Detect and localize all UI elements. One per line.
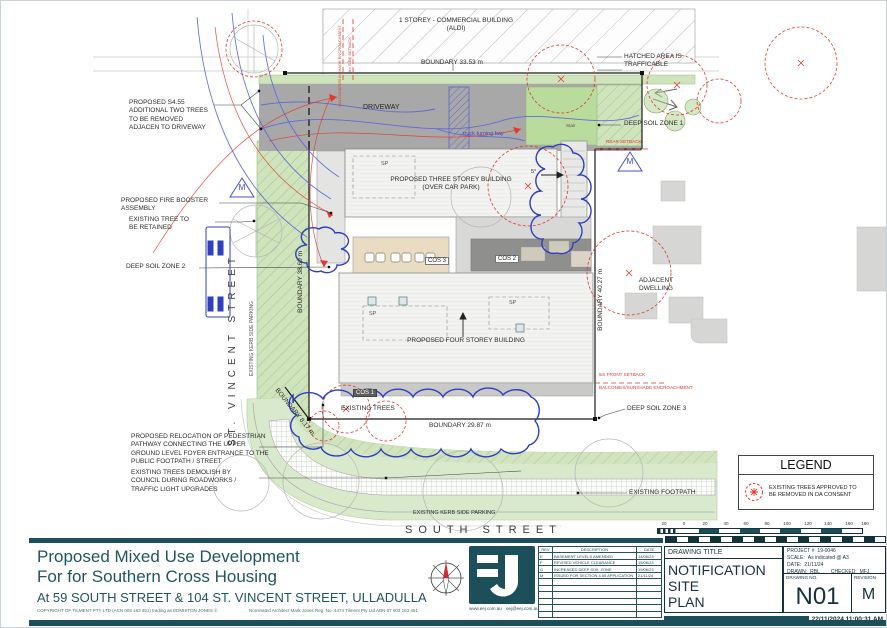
existing-trees-label: EXISTING TREES	[341, 405, 395, 413]
legend-box: LEGEND EXISTING TREES APPROVED TO BE REM…	[738, 455, 874, 510]
scale-tick: 20	[702, 521, 707, 526]
truck-turning-bay-hatch	[449, 87, 469, 149]
existing-footpath-label: EXISTING FOOTPATH	[629, 489, 696, 497]
four-storey-building	[339, 273, 593, 383]
north-compass-icon	[425, 557, 467, 599]
drawing-title: NOTIFICATION SITE PLAN	[665, 559, 782, 613]
fire-booster-note: PROPOSED FIRE BOOSTER ASSEMBLY	[121, 197, 208, 214]
revision-table: REV DESCRIPTION DATE E BASEMENT LEVELS A…	[538, 546, 662, 618]
titleblock-top-bar	[29, 538, 663, 543]
five-degree-label: 5°	[531, 169, 536, 176]
pedestrian-note: PROPOSED RELOCATION OF PEDESTRIAN PATHWA…	[131, 433, 269, 467]
scale-tick: 120	[804, 521, 812, 526]
deep-soil-zone1-area	[597, 85, 642, 146]
sp-label-1: SP	[381, 161, 388, 168]
ej-logo-icon	[469, 546, 535, 604]
drawing-sheet: 1 STOREY - COMMERCIAL BUILDING (ALDI) BO…	[0, 0, 887, 628]
revision-row-empty	[539, 611, 662, 617]
north-verge	[259, 75, 695, 84]
email-text: eej@eej.com.au	[506, 606, 539, 611]
website-text: www.eej.com.au	[469, 606, 502, 611]
front-setback-label: 5m FRONT SETBACK	[599, 372, 645, 378]
sp-label-2: SP	[369, 311, 376, 318]
truck-turning-bay-label: truck turning bay	[463, 131, 504, 138]
cos1-chip: COS 1	[353, 389, 377, 397]
scale-tick: 80	[764, 521, 769, 526]
date-value: 21/11/24	[804, 562, 823, 568]
kerb-parking-south-label: EXISTING KERB SIDE PARKING	[413, 510, 495, 517]
chainage-bar	[665, 536, 886, 543]
three-storey-label: PROPOSED THREE STOREY BUILDING (OVER CAR…	[351, 176, 551, 193]
revision-cell: REVISION M	[852, 573, 885, 612]
architect-text: Nominated Architect Mark Jones Reg. No. …	[249, 608, 418, 613]
boundary-right-label: BOUNDARY 40.27 m	[597, 269, 604, 331]
tree-retained-note: EXISTING TREE TO BE RETAINED	[129, 216, 189, 233]
revision-row: E BASEMENT LEVELS AMENDED 14/06/23	[539, 553, 662, 559]
drawing-no-label: DRAWING NO.	[784, 574, 851, 581]
trees-demolish-note: EXISTING TREES DEMOLISH BY COUNCIL DURIN…	[131, 469, 236, 494]
drawing-title-caption: DRAWING TITLE	[665, 547, 782, 559]
south-awning	[341, 383, 593, 396]
south-street-label: SOUTH STREET	[405, 523, 562, 537]
revision-label: REVISION	[852, 574, 885, 581]
cos3-chip: COS 3	[425, 257, 449, 265]
boundary-left-label: BOUNDARY 38.60 m	[297, 251, 304, 313]
drawing-title-box: DRAWING TITLE NOTIFICATION SITE PLAN	[664, 546, 783, 613]
adjacent-dwelling-label: ADJACENT DWELLING	[629, 277, 683, 294]
project-title-line3: At 59 SOUTH STREET & 104 ST. VINCENT STR…	[37, 590, 427, 605]
west-wing	[317, 151, 345, 263]
revision-row: M ISSUED FOR SECTION 4.55 APPLICATION 21…	[539, 572, 662, 578]
encroachment-v-label: BALCONIES/SUNSHADE ENCROACHMENT	[337, 25, 342, 107]
copyright-text: COPYRIGHT OF TILMENT PTY LTD (ACN 003 16…	[37, 608, 218, 613]
scale-tick: 180	[861, 521, 869, 526]
scale-value: As indicated @ A3	[808, 555, 849, 561]
stair-label: Stair	[566, 123, 575, 129]
scale-tick: 0	[683, 521, 686, 526]
scale-tick: 100	[783, 521, 791, 526]
ej-logo	[469, 546, 535, 609]
legend-item-text: EXISTING TREES APPROVED TO BE REMOVED IN…	[769, 485, 857, 500]
tree-removal-icon	[743, 481, 765, 503]
deep-soil-1-label: DEEP SOIL ZONE 1	[624, 120, 683, 128]
m-marker-west: M	[229, 177, 255, 198]
scale-tick: 160	[845, 521, 853, 526]
scale-tick: 20	[661, 521, 666, 526]
scale-tick: 40	[723, 521, 728, 526]
deep-soil-2-label: DEEP SOIL ZONE 2	[126, 263, 185, 271]
st-vincent-street-label: ST. VINCENT STREET	[227, 253, 238, 446]
legend-title: LEGEND	[739, 456, 873, 475]
balconies-label: BALCONIES/SUNSHADE ENCROACHMENT	[599, 385, 693, 391]
drawing-no-value: N01	[784, 583, 851, 611]
revision-row: G INCREASED DEEP SOIL ZONE 19/06/23	[539, 566, 662, 572]
driveway-label: DRIVEWAY	[363, 103, 400, 112]
m-marker-east: M	[617, 151, 643, 172]
titleblock-bottom-bar	[29, 620, 886, 626]
deep-soil-3-label: DEEP SOIL ZONE 3	[627, 405, 686, 413]
project-info-box: PROJECT # 19-0046 SCALE: As indicated @ …	[783, 546, 886, 613]
aldi-label: 1 STOREY - COMMERCIAL BUILDING (ALDI)	[331, 17, 581, 34]
scale-bar-strip	[657, 528, 863, 534]
s455-note: PROPOSED S4.55 ADDITIONAL TWO TREES TO B…	[129, 99, 208, 133]
side-setback-v-label: 3m SIDE SETBACK	[347, 37, 352, 73]
project-title-line1: Proposed Mixed Use Development	[37, 547, 300, 567]
adjacent-dwelling-footprint	[625, 181, 886, 343]
project-label: PROJECT #	[787, 548, 814, 554]
rear-setback-label: REAR SETBACK	[606, 139, 641, 145]
revision-row: F REVISED VEHICLE CLEARANCE 15/06/23	[539, 559, 662, 565]
sp-label-3: SP	[509, 300, 516, 307]
scale-tick: 60	[743, 521, 748, 526]
scale-label: SCALE:	[787, 555, 805, 561]
hatched-area-label: HATCHED AREA IS TRAFFICABLE	[624, 53, 682, 70]
scale-tick: 140	[824, 521, 832, 526]
four-storey-label: PROPOSED FOUR STOREY BUILDING	[361, 337, 571, 345]
kerb-parking-west-label: EXISTING KERB SIDE PARKING	[249, 301, 255, 376]
cos2-chip: COS 2	[495, 255, 519, 263]
revision-value: M	[852, 586, 885, 604]
project-title-line2: For for Southern Cross Housing	[37, 567, 277, 587]
project-number: 19-0046	[817, 548, 835, 554]
drawing-number-cell: DRAWING NO. N01	[784, 573, 852, 612]
boundary-bottom-label: BOUNDARY 29.87 m	[429, 422, 491, 430]
scale-bar: 20 0 20 40 60 80 100 120 140 160 180	[653, 521, 875, 537]
date-label: DATE:	[787, 562, 801, 568]
boundary-top-label: BOUNDARY 33.53 m	[421, 59, 483, 67]
